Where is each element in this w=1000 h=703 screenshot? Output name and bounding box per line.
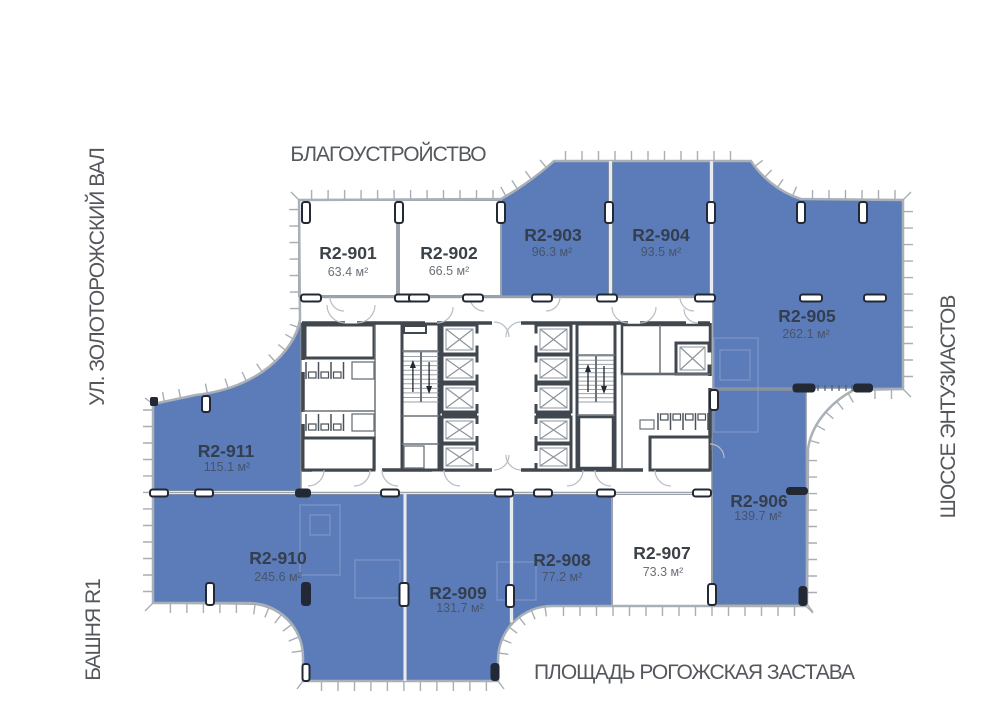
svg-text:245.6 м²: 245.6 м²: [254, 570, 302, 584]
svg-text:63.4 м²: 63.4 м²: [328, 265, 369, 279]
svg-text:R2-906: R2-906: [730, 491, 788, 511]
svg-text:115.1 м²: 115.1 м²: [204, 460, 251, 474]
svg-text:R2-908: R2-908: [533, 550, 591, 570]
svg-text:73.3 м²: 73.3 м²: [643, 565, 684, 579]
svg-text:ШОССЕ ЭНТУЗИАСТОВ: ШОССЕ ЭНТУЗИАСТОВ: [937, 296, 960, 519]
svg-text:R2-902: R2-902: [420, 243, 478, 263]
svg-text:139.7 м²: 139.7 м²: [734, 509, 782, 523]
svg-text:93.5 м²: 93.5 м²: [641, 245, 682, 259]
svg-text:R2-911: R2-911: [198, 441, 255, 461]
svg-text:ПЛОЩАДЬ РОГОЖСКАЯ ЗАСТАВА: ПЛОЩАДЬ РОГОЖСКАЯ ЗАСТАВА: [534, 661, 855, 684]
svg-text:R2-903: R2-903: [524, 225, 582, 245]
svg-text:R2-904: R2-904: [632, 225, 690, 245]
svg-text:131.7 м²: 131.7 м²: [436, 601, 484, 615]
svg-text:96.3 м²: 96.3 м²: [532, 245, 573, 259]
svg-text:262.1 м²: 262.1 м²: [782, 327, 830, 341]
svg-text:БЛАГОУСТРОЙСТВО: БЛАГОУСТРОЙСТВО: [290, 142, 486, 166]
svg-text:77.2 м²: 77.2 м²: [542, 570, 583, 584]
svg-text:R2-905: R2-905: [778, 306, 836, 326]
svg-text:R2-901: R2-901: [319, 243, 377, 263]
svg-text:УЛ. ЗОЛОТОРОЖСКИЙ ВАЛ: УЛ. ЗОЛОТОРОЖСКИЙ ВАЛ: [85, 148, 109, 406]
svg-text:БАШНЯ R1: БАШНЯ R1: [82, 579, 105, 681]
svg-text:R2-907: R2-907: [633, 543, 690, 563]
svg-text:R2-909: R2-909: [429, 583, 487, 603]
svg-text:R2-910: R2-910: [249, 548, 307, 568]
svg-text:66.5 м²: 66.5 м²: [429, 264, 470, 278]
